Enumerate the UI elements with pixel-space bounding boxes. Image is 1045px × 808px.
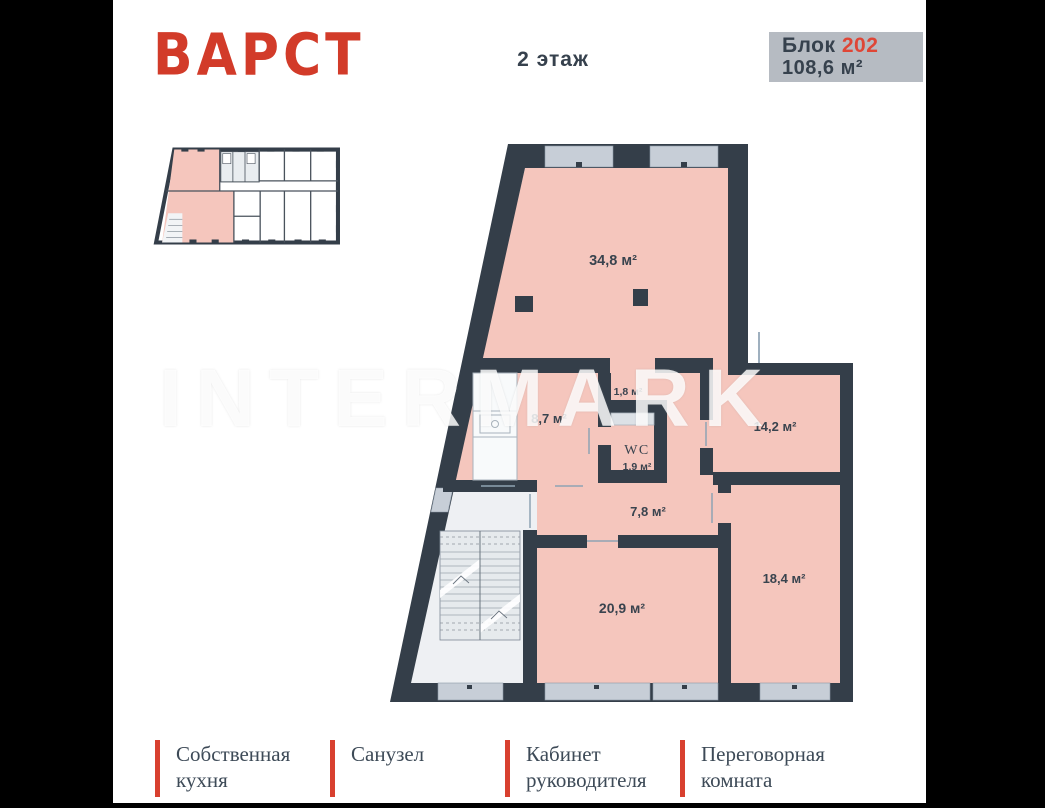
staircase (440, 531, 520, 640)
room-area-meeting: 14,2 м² (754, 419, 798, 434)
legend-accent-bar (330, 740, 335, 797)
block-label: Блок (782, 34, 836, 57)
floor-title: 2 этаж (473, 48, 633, 72)
room-area-corridor: 7,8 м² (630, 504, 666, 519)
legend-accent-bar (505, 740, 510, 797)
kitchen-counter (473, 373, 517, 480)
brand-logo: ВАРСТ (153, 22, 365, 89)
room-area-office-1: 20,9 м² (599, 600, 645, 616)
room-area-hall: 1,8 м² (614, 386, 643, 398)
legend-label: Собственная кухня (176, 740, 325, 797)
wc-vanity (611, 413, 654, 425)
floor-overview-mini-plan (149, 138, 341, 247)
legend-item-bathroom: Санузел (330, 740, 500, 797)
block-number-line: Блок 202 (782, 34, 923, 57)
legend-label: Кабинет руководителя (526, 740, 675, 797)
legend-label: Санузел (351, 740, 424, 797)
legend-accent-bar (155, 740, 160, 797)
bottom-letterbox-bar (0, 803, 1045, 808)
main-floor-plan: 34,8 м² 1,8 м² 8,7 м² WC 1,9 м² 14,2 м² … (385, 138, 885, 708)
column (515, 296, 533, 312)
legend: Собственная кухня Санузел Кабинет руково… (113, 740, 926, 803)
block-area: 108,6 м² (782, 57, 923, 80)
legend-item-kitchen: Собственная кухня (155, 740, 325, 797)
legend-accent-bar (680, 740, 685, 797)
legend-item-office: Кабинет руководителя (505, 740, 675, 797)
legend-item-meeting-room: Переговорная комната (680, 740, 850, 797)
room-area-kitchen: 8,7 м² (531, 411, 567, 426)
room-area-wc: 1,9 м² (623, 461, 652, 473)
block-info-badge: Блок 202 108,6 м² (769, 32, 923, 82)
block-number: 202 (842, 34, 879, 57)
column (633, 289, 648, 306)
page-content: ВАРСТ 2 этаж Блок 202 108,6 м² (113, 0, 926, 803)
room-area-office-2: 18,4 м² (763, 571, 807, 586)
legend-label: Переговорная комната (701, 740, 850, 797)
room-label-wc: WC (624, 443, 650, 458)
room-area-open-space: 34,8 м² (589, 253, 637, 269)
